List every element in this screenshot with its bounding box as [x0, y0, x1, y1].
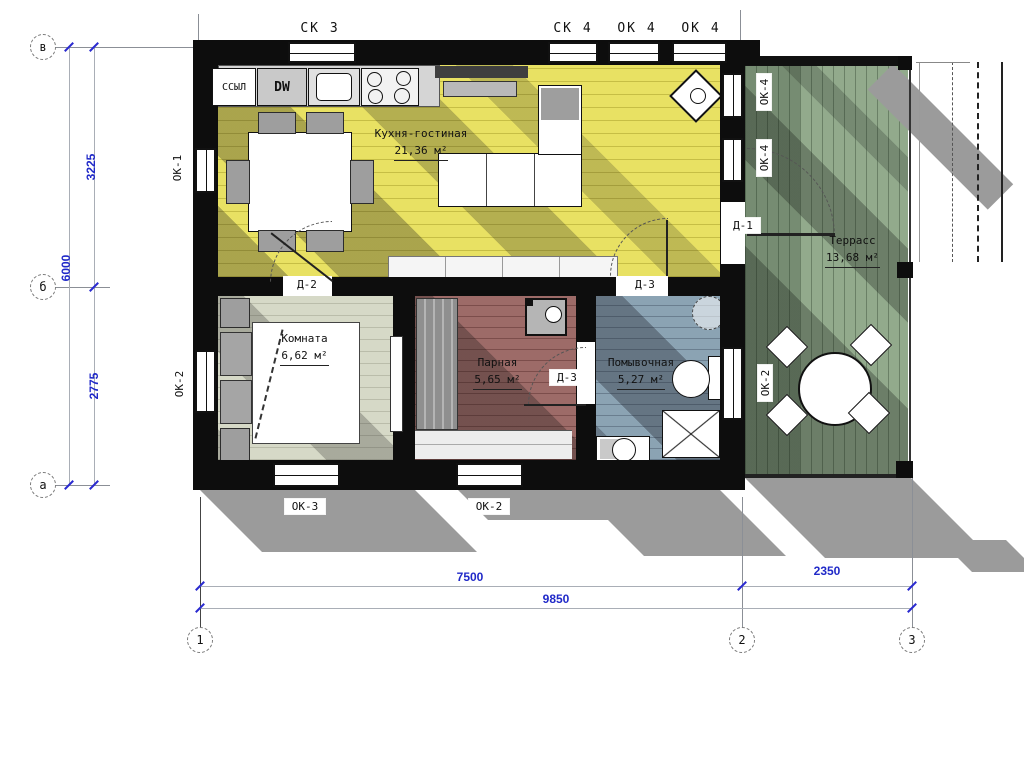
shower-tray	[662, 410, 720, 458]
grid-bubble-row-b: б	[30, 274, 56, 300]
window-ok3-bottom	[273, 463, 340, 487]
room-area: 21,36 м²	[394, 143, 449, 162]
grid-bubble-row-v: в	[30, 34, 56, 60]
room-label-kitchen: Кухня-гостиная 21,36 м²	[365, 126, 477, 161]
grid-letter: в	[39, 40, 46, 54]
dim-line-bottom-outer	[200, 608, 912, 609]
room-name: Кухня-гостиная	[375, 127, 468, 140]
dining-chair	[350, 160, 374, 204]
grid-line-col2-stub	[740, 10, 741, 40]
window-tag-ok2: ОК-2	[758, 365, 772, 401]
dining-chair	[258, 112, 296, 134]
grid-line-row-a	[56, 485, 110, 486]
room-label-terrace: Террасс 13,68 м²	[805, 233, 900, 268]
room-label-bedroom: Комната 6,62 м²	[252, 331, 357, 366]
sauna-step-edge	[410, 444, 572, 445]
room-area: 5,27 м²	[617, 372, 665, 391]
grid-number: 2	[738, 633, 745, 647]
bed-pillow	[220, 332, 252, 376]
sofa-chaise-cushion	[541, 88, 579, 120]
roof-dashed-line	[977, 62, 979, 262]
dishwasher: DW	[257, 68, 307, 106]
door-leaf-d3-wash	[666, 220, 668, 276]
sauna-heater-vent	[525, 298, 533, 306]
building-shadow	[578, 490, 786, 556]
stove-burner	[396, 71, 411, 86]
room-area: 5,65 м²	[473, 372, 521, 391]
window-ok4-right2	[722, 138, 743, 182]
wash-basin	[612, 438, 636, 462]
window-ok4-right1	[722, 73, 743, 118]
window-tag-ok4: ОК-4	[757, 140, 771, 176]
tv-stand	[443, 81, 517, 97]
bedside-block	[220, 428, 250, 462]
dim-value-3225: 3225	[84, 149, 98, 185]
dishwasher-label: DW	[274, 80, 290, 95]
grid-letter: б	[39, 280, 46, 294]
bed-pillow	[220, 380, 252, 424]
tv	[435, 66, 528, 78]
roof-edge-line	[916, 62, 970, 63]
stove-burner	[367, 72, 382, 87]
grid-bubble-col-3: 3	[899, 627, 925, 653]
dim-value-6000: 6000	[59, 250, 73, 286]
bedroom-cabinet	[390, 336, 403, 432]
kitchen-island	[388, 256, 618, 278]
room-name: Помывочная	[608, 356, 674, 369]
room-name: Парная	[478, 356, 518, 369]
dining-chair	[226, 160, 250, 204]
roof-edge-line	[919, 62, 920, 262]
door-tag-d3-wash: Д-3	[628, 277, 662, 292]
dining-chair	[306, 112, 344, 134]
window-tag-ok2: ОК-2	[172, 366, 186, 402]
grid-number: 3	[908, 633, 915, 647]
fireplace-flue	[690, 88, 706, 104]
door-opening-d1	[721, 202, 745, 264]
dim-value-9850: 9850	[526, 592, 586, 606]
door-leaf-d3-sauna	[524, 404, 586, 406]
kitchen-sink	[316, 73, 352, 101]
room-label-sauna: Парная 5,65 м²	[455, 355, 540, 390]
room-name: Комната	[281, 332, 327, 345]
grid-bubble-col-2: 2	[729, 627, 755, 653]
roof-edge-line	[1001, 62, 1003, 262]
terrace-top-edge	[745, 56, 911, 66]
door-tag-d3-sauna: Д-3	[550, 370, 584, 385]
room-name: Террасс	[829, 234, 875, 247]
roof-dashed-line	[952, 62, 953, 262]
grid-line-row-b	[56, 287, 110, 288]
dim-value-2775: 2775	[87, 368, 101, 404]
sauna-bench	[416, 298, 458, 430]
window-tag-ok1: ОК-1	[170, 150, 184, 186]
terrace-bottom-edge	[745, 474, 911, 478]
sauna-heater-stone	[545, 306, 562, 323]
window-ok2-bottom	[456, 463, 523, 487]
sofa-seat	[438, 153, 582, 207]
door-tag-d1: Д-1	[726, 218, 760, 233]
window-ok1-left	[195, 148, 216, 193]
stove-burner	[368, 89, 383, 104]
window-tag-ok4: ОК 4	[676, 21, 726, 36]
bedside-block	[220, 298, 250, 328]
terrace-post	[898, 56, 912, 70]
floor-plan-canvas: ССЫЛ DW	[0, 0, 1024, 766]
window-ok4-top1	[608, 42, 660, 63]
dim-value-7500: 7500	[440, 570, 500, 584]
grid-line-col1-stub	[198, 14, 199, 40]
building-shadow	[200, 490, 477, 552]
refrigerator: ССЫЛ	[212, 68, 256, 106]
dim-value-2350: 2350	[797, 564, 857, 578]
grid-bubble-row-a: а	[30, 472, 56, 498]
grid-number: 1	[196, 633, 203, 647]
room-label-washroom: Помывочная 5,27 м²	[592, 355, 690, 390]
room-area: 13,68 м²	[825, 250, 880, 269]
dim-line-left-inner	[94, 47, 95, 485]
door-tag-d2: Д-2	[290, 277, 324, 292]
window-sk4	[548, 42, 598, 63]
dim-line-bottom-inner	[200, 586, 912, 587]
room-area: 6,62 м²	[280, 348, 328, 367]
window-tag-ok4: ОК 4	[612, 21, 662, 36]
window-ok2-left	[195, 350, 216, 413]
grid-line-row-v	[56, 47, 193, 48]
refrigerator-label: ССЫЛ	[222, 82, 246, 93]
window-tag-ok4: ОК-4	[757, 74, 771, 110]
terrace-post	[896, 461, 913, 478]
wall-left	[193, 40, 218, 490]
window-tag-ok2: ОК-2	[469, 499, 509, 514]
window-tag-ok3: ОК-3	[285, 499, 325, 514]
window-sk3	[288, 42, 356, 63]
grid-letter: а	[39, 478, 46, 492]
stove-burner	[394, 88, 410, 104]
window-ok4-top2	[672, 42, 727, 63]
window-ok2-right	[722, 347, 743, 420]
dining-table	[248, 132, 352, 232]
grid-bubble-col-1: 1	[187, 627, 213, 653]
window-tag-sk4: СК 4	[548, 21, 598, 36]
window-tag-sk3: СК 3	[295, 21, 345, 36]
